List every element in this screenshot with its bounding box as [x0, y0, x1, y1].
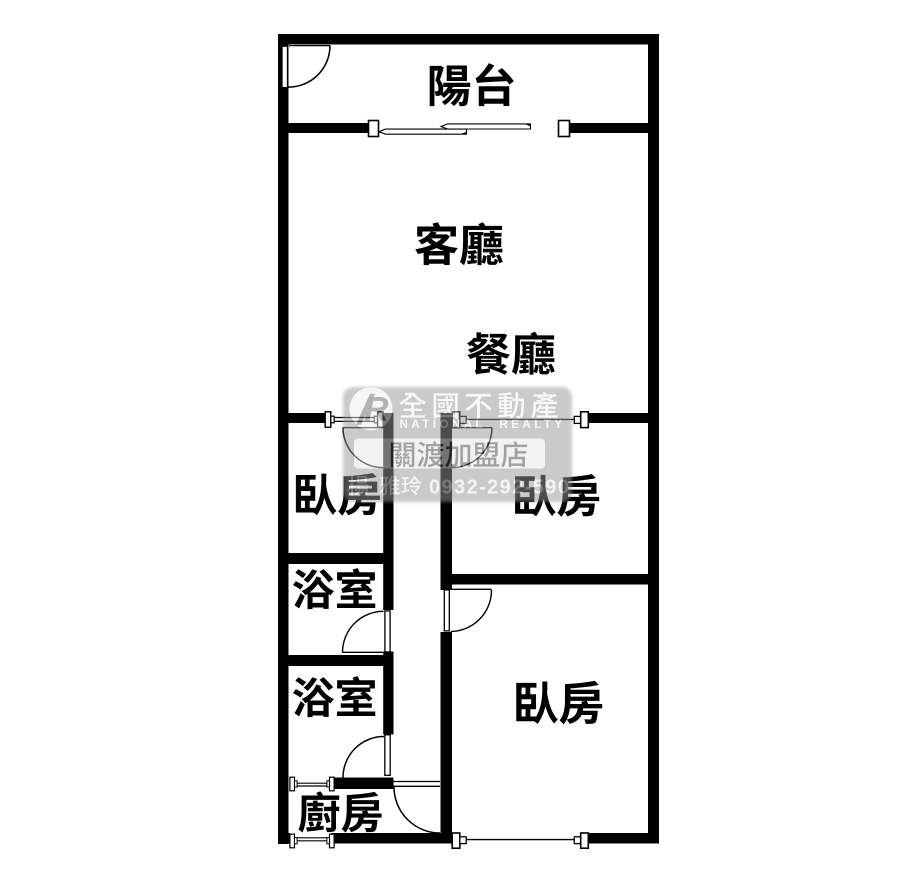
svg-text:0932-292-590: 0932-292-590	[429, 477, 570, 499]
svg-text:R: R	[364, 391, 389, 429]
svg-text:NATIONAL REALTY: NATIONAL REALTY	[400, 419, 566, 431]
